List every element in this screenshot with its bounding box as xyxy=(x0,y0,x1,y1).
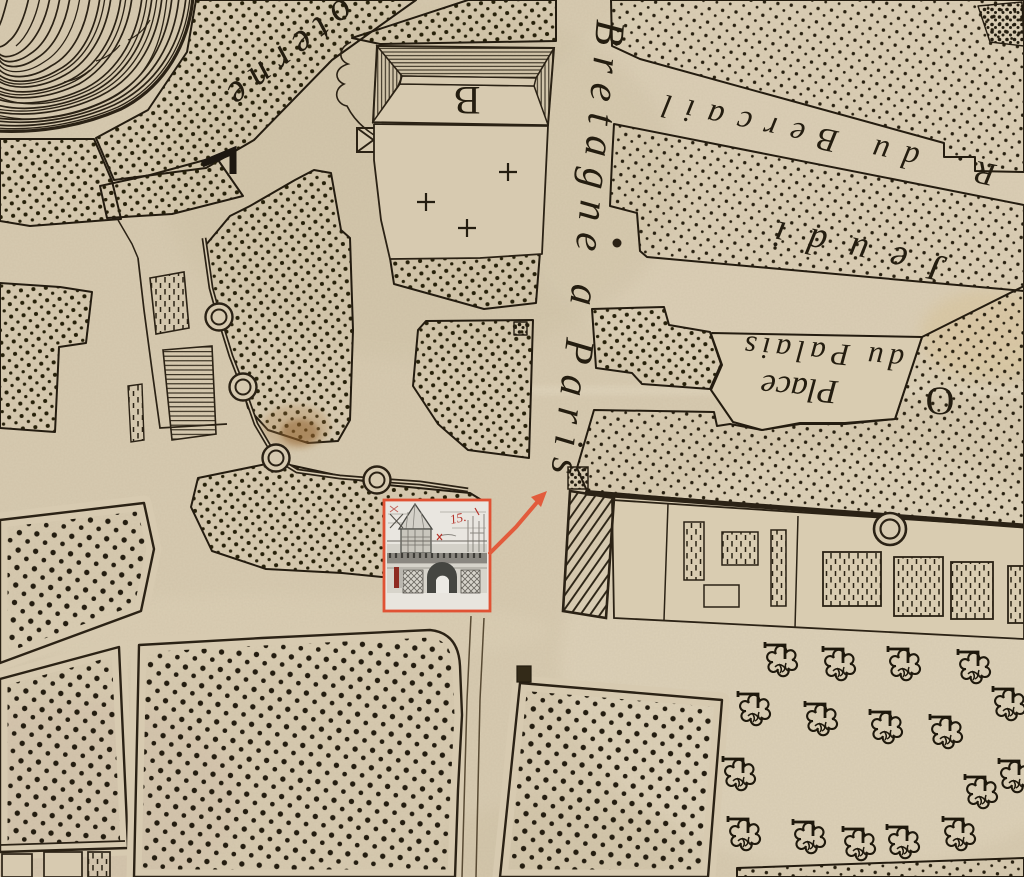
svg-text:B: B xyxy=(454,78,481,123)
svg-text:Place: Place xyxy=(759,367,840,411)
svg-text:O: O xyxy=(926,378,955,423)
